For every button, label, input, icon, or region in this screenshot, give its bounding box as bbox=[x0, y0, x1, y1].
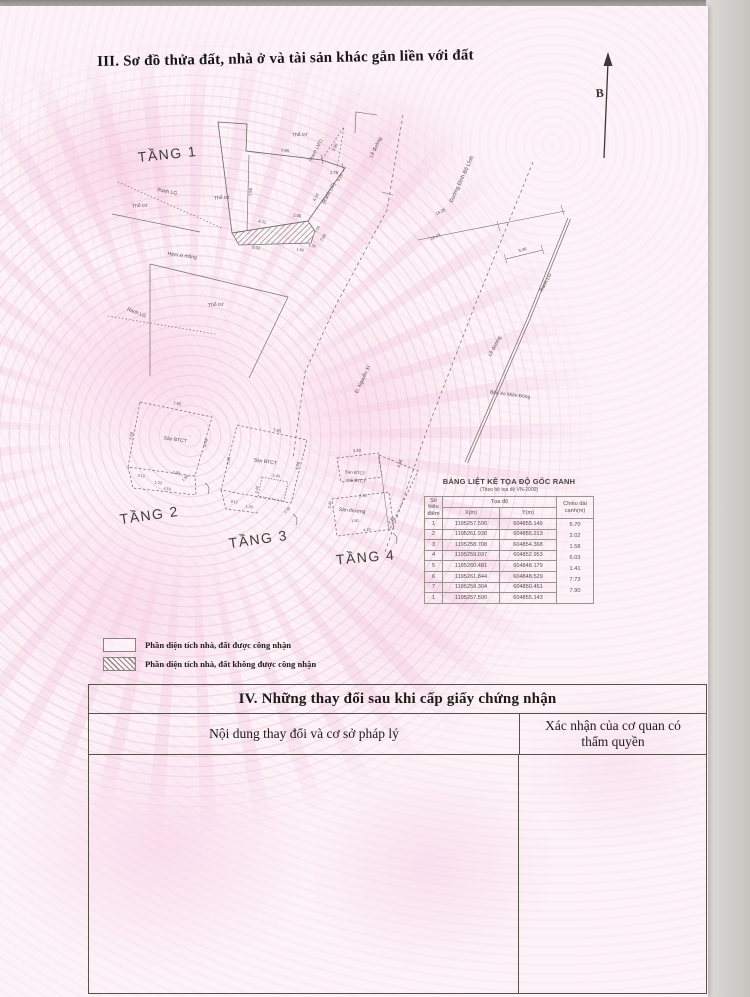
diagram-label: 3.00 bbox=[331, 142, 340, 152]
edge-length-value: 7.90 bbox=[557, 588, 593, 594]
col-header-change-content: Nội dung thay đổi và cơ sở pháp lý bbox=[89, 714, 519, 754]
edge-length-value: 1.41 bbox=[557, 566, 593, 572]
legend-item-unrecognized: Phần diện tích nhà, đất không được công … bbox=[103, 657, 316, 671]
coord-cell: 604848.529 bbox=[500, 571, 557, 582]
coordinate-table-block: BẢNG LIỆT KÊ TỌA ĐỘ GỐC RANH (Theo hệ tọ… bbox=[424, 477, 594, 604]
diagram-label: 2.06 bbox=[293, 212, 302, 218]
floor-label: TẦNG 3 bbox=[228, 527, 289, 551]
coord-cell: 1195257.590 bbox=[443, 593, 500, 604]
diagram-label: 3.40 bbox=[353, 448, 362, 453]
section4-changes-table: IV. Những thay đổi sau khi cấp giấy chứn… bbox=[88, 684, 707, 994]
coord-cell: 1195261.844 bbox=[443, 571, 500, 582]
diagram-label: 1.06 bbox=[313, 225, 321, 233]
diagram-label: 7.55 bbox=[248, 187, 253, 196]
coord-cell: 1195257.590 bbox=[443, 519, 500, 530]
legend-label: Phần diện tích nhà, đất không được công … bbox=[145, 659, 316, 669]
diagram-label: 1.50 bbox=[351, 519, 359, 524]
diagram-label: 7.95 bbox=[281, 148, 290, 154]
coord-cell: 604855.149 bbox=[500, 519, 557, 530]
diagram-label: (Ranh LMT) bbox=[308, 138, 324, 162]
diagram-label: 2.40 bbox=[272, 474, 280, 479]
diagram-label: 0.48 bbox=[319, 233, 327, 241]
section4-title: IV. Những thay đổi sau khi cấp giấy chứn… bbox=[89, 685, 706, 714]
unrecognized-area-hatch bbox=[232, 221, 315, 245]
diagram-label: 14.35 bbox=[435, 207, 447, 216]
diagram-label: 4.10 bbox=[163, 487, 171, 492]
diagram-label: Sàn BTCT bbox=[163, 435, 187, 444]
diagram-label: 7.95 bbox=[173, 400, 182, 406]
diagram-label: 7.05 bbox=[226, 456, 232, 465]
diagram-label: Ranh LG bbox=[126, 307, 147, 320]
coord-cell: 604850.451 bbox=[500, 582, 557, 593]
diagram-label: 6.02 bbox=[252, 244, 261, 250]
diagram-label: Đường Đinh Bộ Lĩnh bbox=[449, 155, 476, 204]
coord-cell: 1195258.708 bbox=[443, 540, 500, 551]
legend-item-recognized: Phần diện tích nhà, đất được công nhận bbox=[103, 638, 316, 652]
col-header-x: X(m) bbox=[443, 508, 500, 519]
diagram-label: Ranh LG bbox=[539, 272, 554, 293]
diagram-label: Thổ cư bbox=[132, 201, 149, 209]
change-content-cell bbox=[89, 755, 518, 993]
edge-length-value: 6.03 bbox=[557, 555, 593, 561]
col-header-authority-confirm: Xác nhận của cơ quan có thẩm quyền bbox=[519, 714, 706, 754]
coord-cell: 5 bbox=[425, 561, 443, 572]
diagram-label: 2.35 bbox=[387, 516, 395, 524]
unrecognized-area-swatch bbox=[103, 657, 136, 671]
coord-cell: 1 bbox=[425, 519, 443, 530]
edge-length-cell: 5.702.021.586.031.417.737.90 bbox=[557, 519, 594, 604]
coord-cell: 4 bbox=[425, 550, 443, 561]
diagram-label: 2.40 bbox=[359, 494, 367, 499]
coord-cell: 1195261.930 bbox=[443, 529, 500, 540]
coordinate-table-subtitle: (Theo hệ tọa độ VN-2000) bbox=[424, 487, 594, 493]
diagram-label: 3.12 bbox=[137, 474, 145, 479]
coord-cell: 604855.213 bbox=[500, 529, 557, 540]
diagram-label: Thổ cư bbox=[208, 300, 225, 308]
coordinate-table-title: BẢNG LIỆT KÊ TỌA ĐỘ GỐC RANH bbox=[424, 477, 594, 486]
diagram-label: 5.46 bbox=[518, 246, 528, 253]
edge-length-value: 2.02 bbox=[557, 533, 593, 539]
edge-length-value: 1.58 bbox=[557, 544, 593, 550]
diagram-label: Lề đường bbox=[487, 335, 503, 357]
coord-cell: 1195260.481 bbox=[443, 561, 500, 572]
section4-header-row: Nội dung thay đổi và cơ sở pháp lý Xác n… bbox=[89, 714, 706, 755]
diagram-label: 4.06 bbox=[396, 458, 404, 468]
diagram-label: Thổ cư bbox=[292, 130, 309, 138]
diagram-label: Hẻm xi măng bbox=[167, 251, 197, 261]
diagram-label: Bến Xe Miền Đông bbox=[490, 390, 531, 401]
col-header-length: Chiều dài cạnh(m) bbox=[557, 497, 594, 519]
diagram-label: Sàn BTCT bbox=[253, 457, 277, 466]
diagram-label: Lề đường bbox=[369, 136, 384, 159]
coord-cell: 604852.953 bbox=[500, 550, 557, 561]
coordinate-table: Số hiệu điểm Tọa độ Chiều dài cạnh(m) X(… bbox=[424, 496, 594, 604]
coord-cell: 604848.179 bbox=[500, 561, 557, 572]
diagram-label: 4.11 bbox=[258, 218, 267, 224]
floor-label: TẦNG 2 bbox=[119, 503, 180, 527]
diagram-label: 28.00 bbox=[430, 232, 442, 241]
diagram-label: (Ranh LG) bbox=[321, 182, 337, 206]
scanned-certificate-page: III. Sơ đồ thửa đất, nhà ở và tài sản kh… bbox=[0, 0, 750, 997]
coord-cell: 1195259.304 bbox=[443, 582, 500, 593]
diagram-label: 2.35 bbox=[283, 506, 291, 514]
north-arrow bbox=[604, 52, 613, 158]
diagram-label: 1.20 bbox=[245, 505, 253, 510]
floor-label: TẦNG 1 bbox=[137, 143, 198, 165]
diagram-label: 3.40 bbox=[328, 501, 333, 509]
floor-label: TẦNG 4 bbox=[335, 546, 396, 567]
north-label: B bbox=[595, 86, 604, 101]
col-header-point: Số hiệu điểm bbox=[425, 497, 443, 519]
diagram-label: Sân thượng bbox=[339, 507, 366, 515]
diagram-label: 7.05 bbox=[129, 431, 135, 440]
recognized-area-swatch bbox=[103, 638, 136, 652]
coord-cell: 1 bbox=[425, 593, 443, 604]
diagram-label: mái BTCT bbox=[346, 477, 366, 484]
edge-length-value: 7.73 bbox=[557, 577, 593, 583]
tang2-outline bbox=[128, 402, 212, 495]
coord-cell: 7 bbox=[425, 582, 443, 593]
authority-confirm-cell bbox=[518, 755, 706, 993]
coord-cell: 6 bbox=[425, 571, 443, 582]
coord-cell: 3 bbox=[425, 540, 443, 551]
coord-cell: 2 bbox=[425, 529, 443, 540]
legend: Phần diện tích nhà, đất được công nhận P… bbox=[103, 638, 316, 676]
col-header-coords: Tọa độ bbox=[443, 497, 557, 508]
neighbor-boundaries bbox=[108, 182, 288, 378]
legend-label: Phần diện tích nhà, đất được công nhận bbox=[145, 640, 291, 650]
coord-row: 11195257.590604855.1495.702.021.586.031.… bbox=[425, 519, 594, 530]
diagram-label: 4.10 bbox=[311, 192, 320, 202]
edge-length-value: 5.70 bbox=[557, 522, 593, 528]
coord-cell: 604854.368 bbox=[500, 540, 557, 551]
diagram-label: 1.50 bbox=[296, 247, 304, 252]
diagram-label: Sàn BTCT bbox=[345, 469, 366, 476]
diagram-label: 1.20 bbox=[154, 481, 162, 486]
diagram-label: 4.06 bbox=[202, 438, 209, 448]
diagram-label: 2.05 bbox=[172, 471, 180, 476]
diagram-label: 1.50 bbox=[181, 474, 189, 482]
col-header-y: Y(m) bbox=[500, 508, 557, 519]
diagram-label: 4.10 bbox=[363, 528, 371, 533]
diagram-label: 1.30 bbox=[308, 243, 316, 248]
diagram-label: Đ. Nguyễn Xí bbox=[353, 364, 372, 394]
coord-cell: 604855.143 bbox=[500, 593, 557, 604]
diagram-label: Ranh LG bbox=[157, 187, 178, 197]
section4-body-row bbox=[89, 755, 706, 993]
coord-cell: 1195259.037 bbox=[443, 550, 500, 561]
diagram-label: 3.12 bbox=[230, 500, 238, 505]
floor-plan-diagram: TẦNG 1TẦNG 2TẦNG 3TẦNG 4BThổ cưThổ cưThổ… bbox=[0, 0, 750, 630]
diagram-label: Thổ cư bbox=[214, 193, 231, 201]
